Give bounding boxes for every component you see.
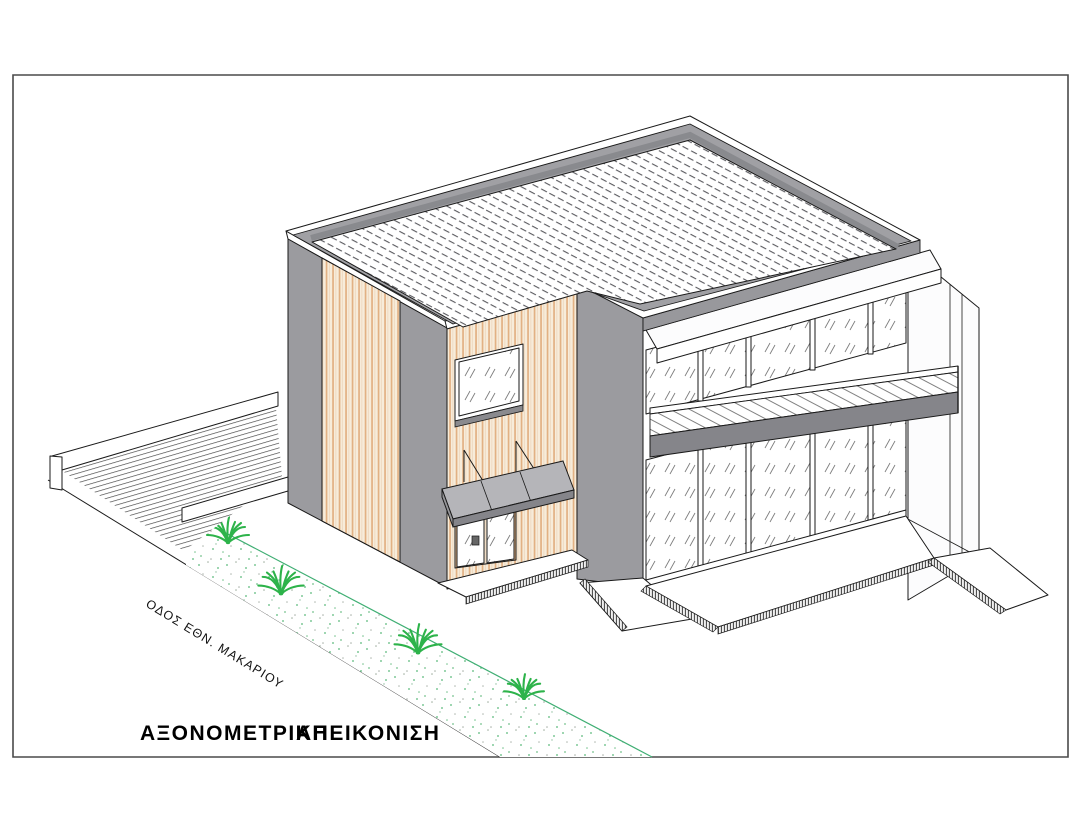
- title-word-2: ΑΠΕΙΚΟΝΙΣΗ: [296, 722, 440, 745]
- mullion: [698, 446, 703, 574]
- retaining-wall-end-cap: [50, 456, 62, 490]
- drawing-title: ΑΞΟΝΟΜΕΤΡΙΚΗ ΑΠΕΙΚΟΝΙΣΗ: [140, 722, 440, 745]
- drawing-sheet: ΟΔΟΣ ΕΘΝ. ΜΑΚΑΡΙΟΥ: [0, 0, 1080, 835]
- corner-wall: [577, 284, 643, 587]
- door-handle: [472, 536, 479, 545]
- side-wood-slat-panel: [322, 258, 400, 562]
- mullion: [746, 433, 751, 561]
- axonometric-drawing: ΟΔΟΣ ΕΘΝ. ΜΑΚΑΡΙΟΥ: [0, 0, 1080, 835]
- mullion: [810, 416, 815, 544]
